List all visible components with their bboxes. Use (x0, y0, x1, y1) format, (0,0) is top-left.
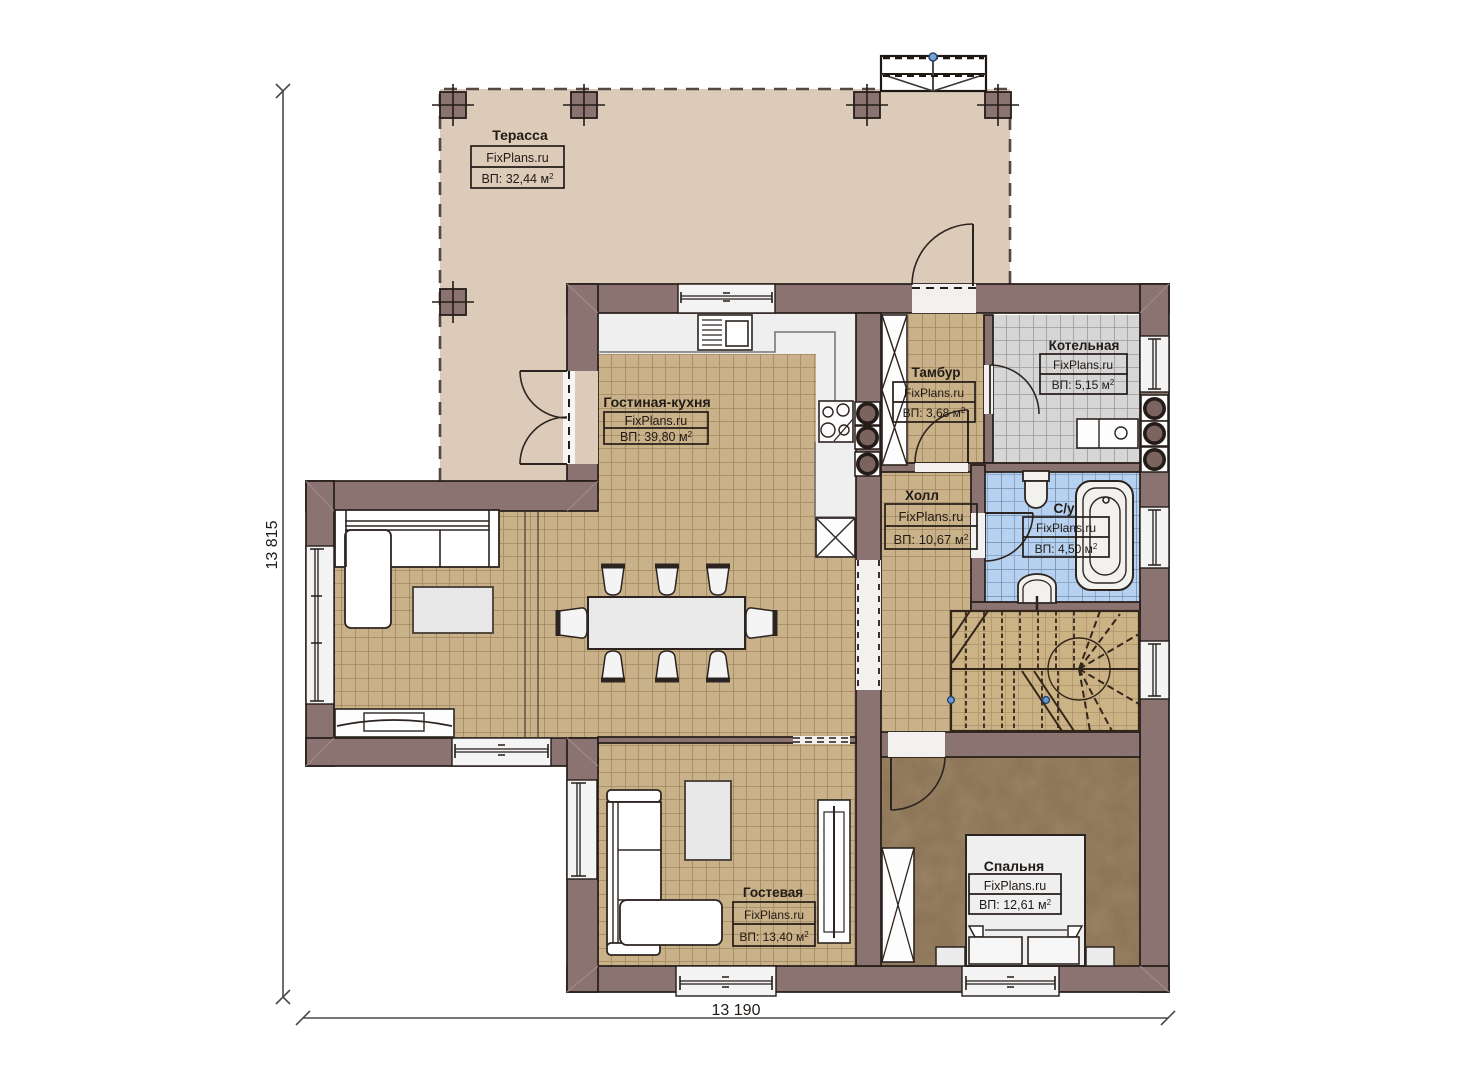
svg-text:13 815: 13 815 (264, 520, 281, 569)
svg-text:ВП: 5,15 м2: ВП: 5,15 м2 (1052, 378, 1115, 392)
svg-text:Спальня: Спальня (984, 858, 1044, 874)
svg-text:FixPlans.ru: FixPlans.ru (625, 414, 688, 428)
svg-text:FixPlans.ru: FixPlans.ru (744, 908, 804, 922)
svg-text:ВП: 12,61 м2: ВП: 12,61 м2 (979, 898, 1052, 912)
svg-text:FixPlans.ru: FixPlans.ru (1036, 521, 1096, 535)
svg-text:ВП: 4,50 м2: ВП: 4,50 м2 (1035, 542, 1098, 556)
svg-text:FixPlans.ru: FixPlans.ru (486, 151, 549, 165)
svg-text:FixPlans.ru: FixPlans.ru (898, 509, 963, 524)
svg-text:ВП: 13,40 м2: ВП: 13,40 м2 (739, 930, 809, 944)
svg-text:ВП: 3,68 м2: ВП: 3,68 м2 (903, 406, 966, 420)
svg-text:Котельная: Котельная (1049, 338, 1120, 353)
svg-text:Холл: Холл (905, 488, 939, 503)
svg-text:С/у: С/у (1053, 501, 1075, 516)
svg-text:ВП: 10,67 м2: ВП: 10,67 м2 (893, 532, 968, 547)
svg-text:FixPlans.ru: FixPlans.ru (984, 879, 1047, 893)
svg-text:ВП: 39,80 м2: ВП: 39,80 м2 (620, 430, 693, 444)
svg-text:ВП: 32,44 м2: ВП: 32,44 м2 (481, 172, 554, 186)
svg-text:FixPlans.ru: FixPlans.ru (904, 386, 964, 400)
svg-text:Гостиная-кухня: Гостиная-кухня (603, 394, 710, 410)
svg-text:Гостевая: Гостевая (743, 885, 803, 900)
svg-text:Тамбур: Тамбур (912, 365, 961, 380)
svg-text:FixPlans.ru: FixPlans.ru (1053, 358, 1113, 372)
svg-text:Терасса: Терасса (492, 127, 548, 143)
svg-text:13 190: 13 190 (712, 1002, 761, 1019)
